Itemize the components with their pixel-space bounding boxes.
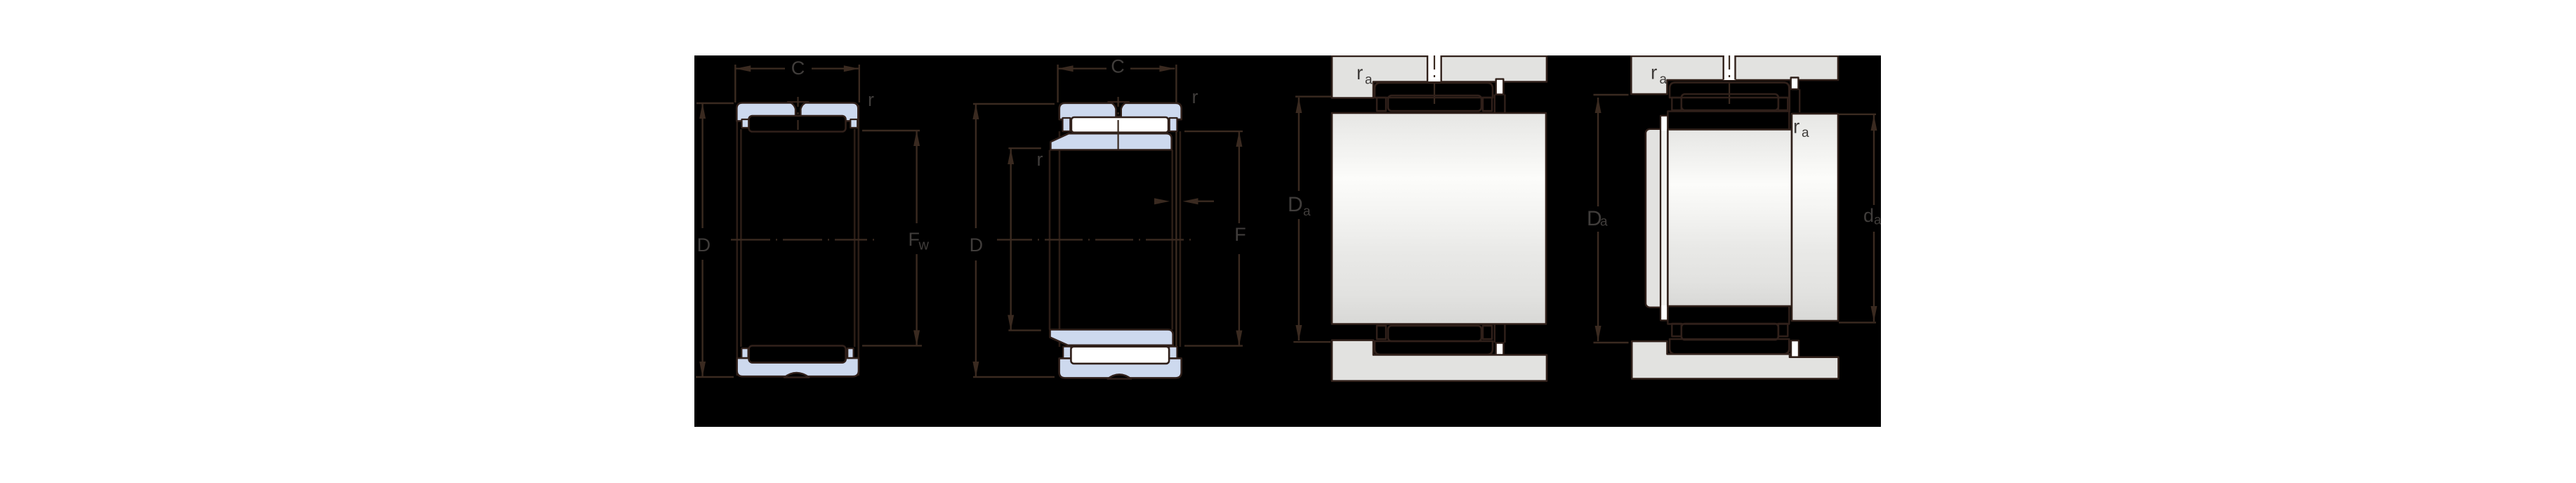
svg-text:r: r (1037, 149, 1043, 170)
svg-text:a: a (1600, 215, 1608, 230)
svg-text:a: a (1660, 72, 1667, 87)
svg-text:d: d (1863, 205, 1874, 226)
svg-text:D: D (1288, 193, 1303, 216)
svg-text:D: D (970, 234, 984, 256)
svg-text:D: D (697, 234, 711, 256)
svg-text:a: a (1365, 73, 1373, 88)
svg-text:r: r (868, 89, 874, 110)
svg-text:r: r (1192, 86, 1198, 107)
svg-text:F: F (1234, 224, 1246, 245)
svg-text:C: C (1111, 56, 1125, 77)
svg-text:C: C (791, 58, 805, 79)
svg-text:a: a (1874, 213, 1882, 228)
svg-text:a: a (1802, 126, 1809, 140)
svg-text:r: r (1356, 62, 1363, 84)
svg-text:w: w (918, 238, 930, 253)
svg-text:a: a (1303, 204, 1311, 219)
svg-text:r: r (1651, 62, 1657, 84)
svg-text:r: r (1793, 116, 1799, 138)
